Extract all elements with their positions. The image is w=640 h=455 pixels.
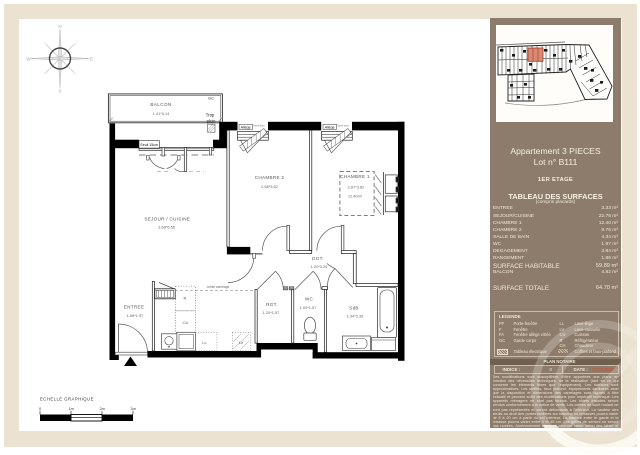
svg-text:2m: 2m: [100, 407, 105, 411]
svg-text:N: N: [58, 24, 61, 29]
svg-text:E: E: [90, 57, 93, 62]
svg-text:1.00*1.57: 1.00*1.57: [300, 305, 317, 310]
svg-text:3.68*6.56: 3.68*6.56: [158, 225, 175, 230]
svg-text:1.68*1.97: 1.68*1.97: [127, 313, 144, 318]
svg-text:ECHELLE GRAPHIQUE: ECHELLE GRAPHIQUE: [40, 397, 94, 402]
svg-text:CHAMBRE 1: CHAMBRE 1: [340, 174, 370, 179]
svg-text:RGT.: RGT.: [266, 302, 278, 307]
svg-text:Allège: Allège: [241, 125, 251, 129]
svg-text:Seuil haut: Seuil haut: [253, 124, 265, 128]
svg-text:1m: 1m: [69, 407, 74, 411]
svg-text:3m: 3m: [131, 407, 136, 411]
svg-text:Limite carrelage: Limite carrelage: [207, 285, 230, 289]
svg-text:plein: plein: [207, 119, 217, 124]
svg-text:DGT.: DGT.: [312, 256, 324, 261]
svg-text:WC: WC: [305, 297, 314, 302]
svg-text:R: R: [184, 296, 187, 301]
svg-text:1.20*1.57: 1.20*1.57: [263, 310, 280, 315]
svg-text:Trop: Trop: [206, 113, 215, 118]
svg-text:1.20*3.20: 1.20*3.20: [311, 264, 328, 269]
svg-text:Allège: Allège: [325, 125, 335, 129]
svg-text:LV: LV: [239, 340, 244, 345]
svg-text:BALCON: BALCON: [150, 102, 171, 107]
svg-text:1.41*3.14: 1.41*3.14: [153, 111, 170, 116]
svg-text:0: 0: [39, 407, 41, 411]
svg-text:S: S: [58, 89, 61, 94]
svg-text:12.40m²: 12.40m²: [348, 193, 363, 198]
svg-text:SdB: SdB: [349, 305, 359, 310]
svg-text:SEJOUR / CUISINE: SEJOUR / CUISINE: [144, 216, 190, 221]
svg-text:2.58*3.82: 2.58*3.82: [261, 184, 278, 189]
svg-text:LL: LL: [202, 340, 207, 345]
svg-text:W: W: [26, 57, 31, 62]
svg-text:1.94*2.35: 1.94*2.35: [347, 313, 364, 318]
svg-text:GC: GC: [208, 96, 214, 101]
svg-text:CHAMBRE 2: CHAMBRE 2: [255, 175, 285, 180]
svg-text:CU: CU: [183, 320, 189, 325]
svg-text:ENTREE: ENTREE: [124, 305, 144, 310]
svg-text:2.87*3.82: 2.87*3.82: [348, 185, 365, 190]
svg-text:Seuil haut: Seuil haut: [337, 124, 349, 128]
svg-text:Seuil 15cm: Seuil 15cm: [140, 143, 158, 147]
